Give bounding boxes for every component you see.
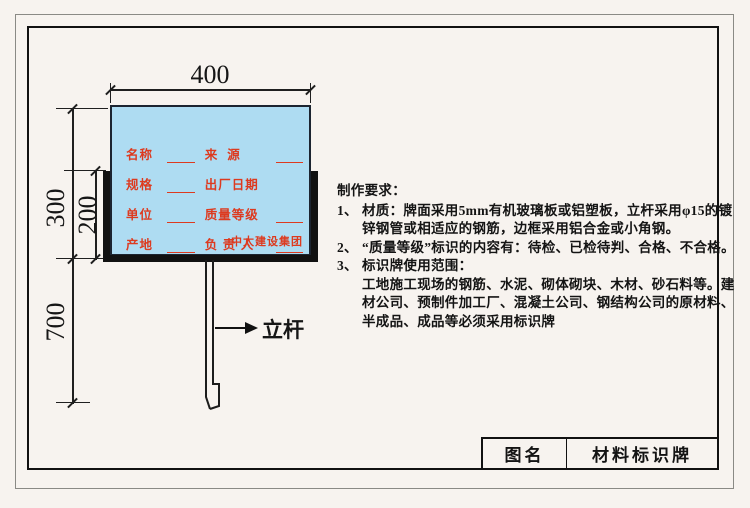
requirement-number: 2、 — [337, 239, 358, 258]
title-block-label: 图名 — [483, 439, 567, 468]
board-row-unit-grade: 单位 质量等级 — [126, 193, 303, 223]
field-label-source: 来 源 — [205, 144, 274, 163]
dimension-pole-height-label: 700 — [43, 290, 69, 354]
requirement-item-3: 3、 标识牌使用范围： 工地施工现场的钢筋、水泥、砌体砌块、木材、砂石料等。建材… — [337, 257, 735, 331]
title-block-value: 材料标识牌 — [567, 439, 717, 468]
requirement-number: 3、 — [337, 257, 358, 276]
extension-line — [64, 170, 106, 171]
requirement-text: “质量等级”标识的内容有：待检、已检待判、合格、不合格。 — [362, 240, 735, 255]
requirement-number: 1、 — [337, 202, 358, 221]
field-blank — [167, 213, 195, 223]
board-frame-right — [311, 171, 318, 262]
extension-line — [56, 108, 108, 109]
field-label-unit: 单位 — [126, 204, 165, 223]
pole-graphic — [195, 260, 235, 412]
sign-board: 名称 来 源 规格 出厂日期 单位 质量等级 产地 负 责 人 — [110, 105, 311, 256]
field-label-origin: 产地 — [126, 234, 165, 253]
requirement-text: 标识牌使用范围： — [362, 258, 472, 273]
board-row-spec-date: 规格 出厂日期 — [126, 163, 303, 193]
extension-line — [56, 258, 108, 259]
board-frame-left — [103, 171, 110, 262]
field-blank — [167, 243, 195, 253]
dimension-width-label: 400 — [170, 60, 250, 90]
board-row-name-source: 名称 来 源 — [126, 133, 303, 163]
dimension-board-height-label: 300 — [43, 176, 69, 240]
field-label-name: 名称 — [126, 144, 165, 163]
dimension-line-width — [110, 89, 311, 91]
drawing-sheet: 400 300 200 700 名称 来 源 规格 出厂日期 — [0, 0, 750, 508]
field-label-spec: 规格 — [126, 174, 165, 193]
requirement-text: 材质：牌面采用5mm有机玻璃板或铝塑板，立杆采用φ15的镀锌钢管或相适应的钢筋，… — [362, 203, 732, 237]
dimension-frame-height-label: 200 — [75, 183, 101, 247]
field-label-quality-grade: 质量等级 — [205, 204, 274, 223]
pole-callout-arrow-icon — [245, 322, 258, 334]
field-blank — [276, 153, 304, 163]
requirement-item-1: 1、 材质：牌面采用5mm有机玻璃板或铝塑板，立杆采用φ15的镀锌钢管或相适应的… — [337, 202, 735, 239]
title-block: 图名 材料标识牌 — [481, 437, 719, 470]
requirement-item-2: 2、 “质量等级”标识的内容有：待检、已检待判、合格、不合格。 — [337, 239, 735, 258]
requirement-body: 工地施工现场的钢筋、水泥、砌体砌块、木材、砂石料等。建材公司、预制件加工厂、混凝… — [362, 276, 735, 332]
requirements-heading: 制作要求： — [337, 182, 735, 201]
extension-line — [110, 83, 111, 103]
requirements-block: 制作要求： 1、 材质：牌面采用5mm有机玻璃板或铝塑板，立杆采用φ15的镀锌钢… — [337, 182, 735, 331]
field-blank — [167, 183, 195, 193]
field-blank — [276, 183, 304, 193]
field-label-factory-date: 出厂日期 — [205, 174, 274, 193]
extension-line — [310, 83, 311, 103]
field-blank — [276, 213, 304, 223]
pole-callout-line — [215, 327, 246, 329]
brand-label: 中太建设集团 — [231, 233, 303, 249]
pole-label: 立杆 — [262, 314, 304, 344]
field-blank — [167, 153, 195, 163]
